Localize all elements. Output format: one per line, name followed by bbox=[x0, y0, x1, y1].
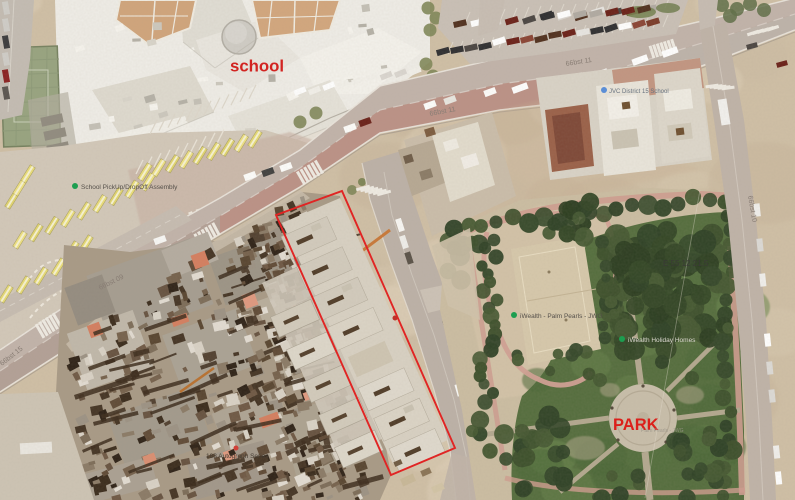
svg-text:188 Autograph Series: 188 Autograph Series bbox=[206, 453, 269, 460]
svg-text:iWealth Holiday Homes: iWealth Holiday Homes bbox=[628, 337, 696, 344]
svg-text:iWealth - Palm Pearls - JWG: iWealth - Palm Pearls - JWG bbox=[520, 313, 603, 320]
svg-text:JVC District 15 School: JVC District 15 School bbox=[609, 89, 669, 95]
svg-text:E 55 12 21.5: E 55 12 21.5 bbox=[663, 259, 709, 268]
svg-text:school: school bbox=[230, 57, 284, 76]
svg-text:Palm Pearls - JWG: Palm Pearls - JWG bbox=[641, 428, 684, 434]
svg-text:School PickUp/DropOff Assembly: School PickUp/DropOff Assembly bbox=[81, 184, 178, 191]
